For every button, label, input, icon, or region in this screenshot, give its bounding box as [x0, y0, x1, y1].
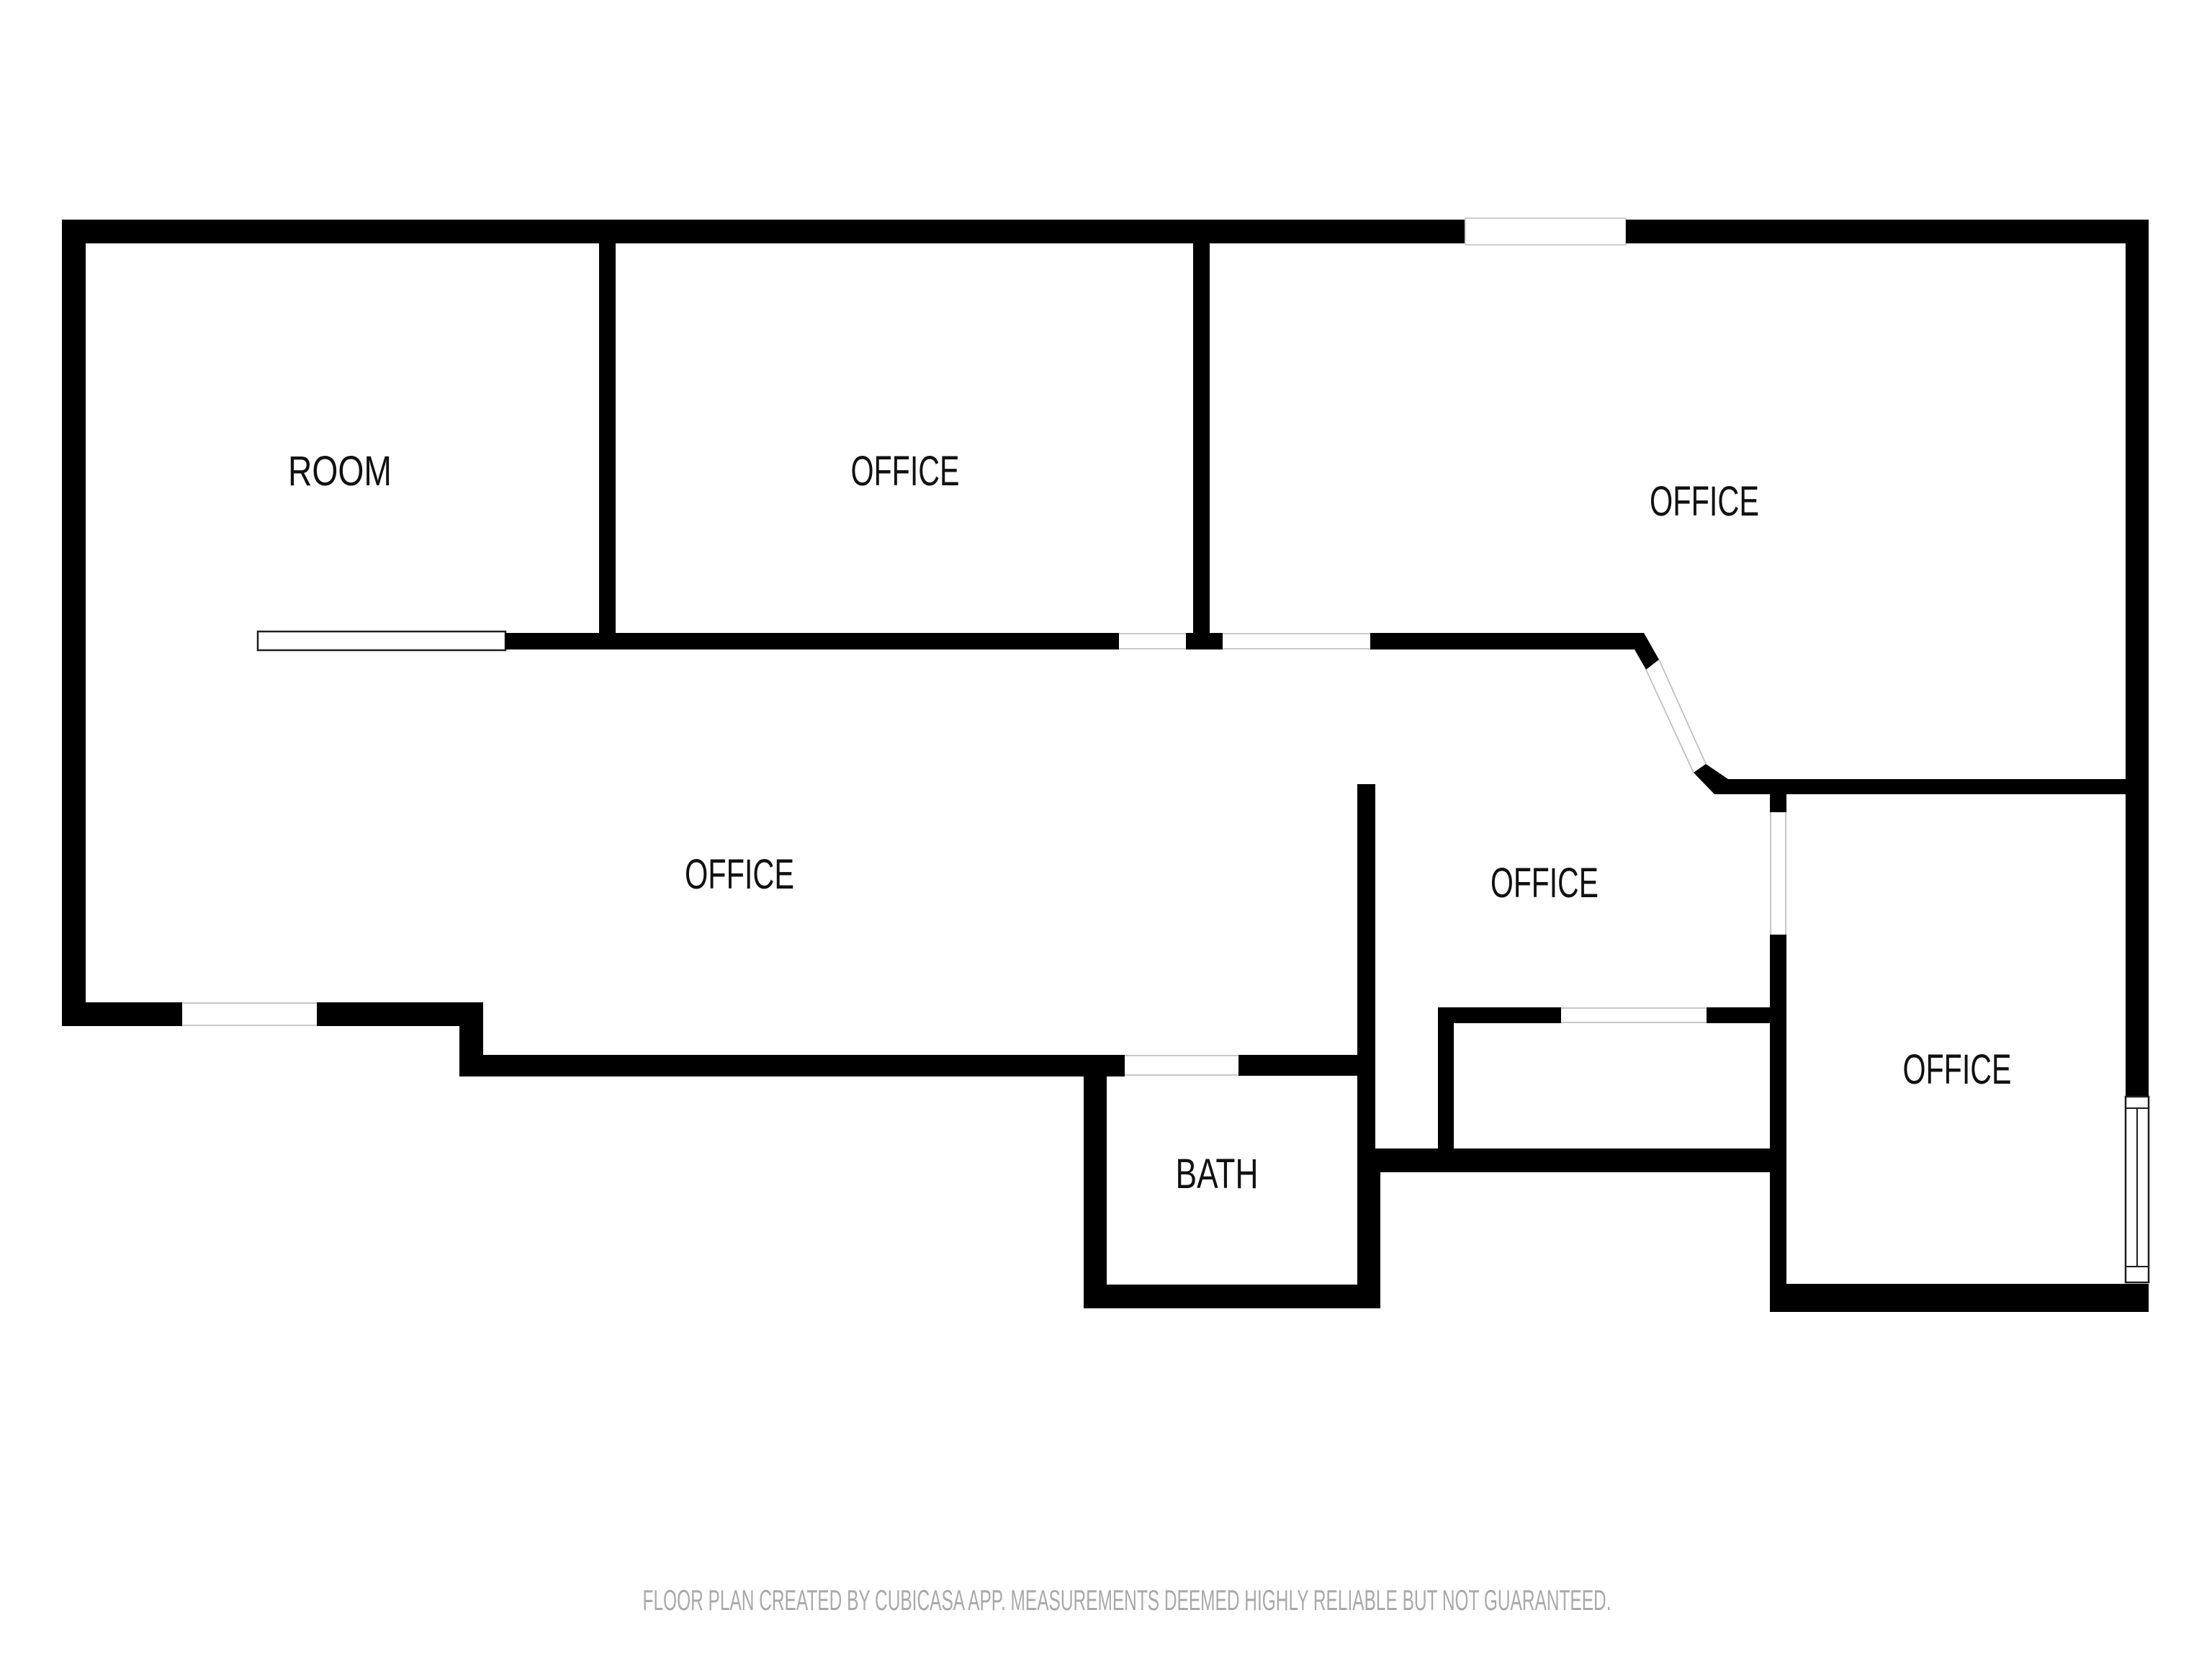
svg-text:BATH: BATH — [1176, 1151, 1259, 1197]
svg-text:OFFICE: OFFICE — [1491, 860, 1599, 907]
svg-text:OFFICE: OFFICE — [1650, 478, 1759, 525]
svg-text:OFFICE: OFFICE — [685, 851, 794, 898]
svg-text:ROOM: ROOM — [288, 448, 392, 495]
svg-text:OFFICE: OFFICE — [1903, 1046, 2012, 1093]
svg-text:OFFICE: OFFICE — [851, 448, 960, 495]
svg-text:FLOOR PLAN CREATED BY CUBICASA: FLOOR PLAN CREATED BY CUBICASA APP. MEAS… — [643, 1585, 1611, 1617]
